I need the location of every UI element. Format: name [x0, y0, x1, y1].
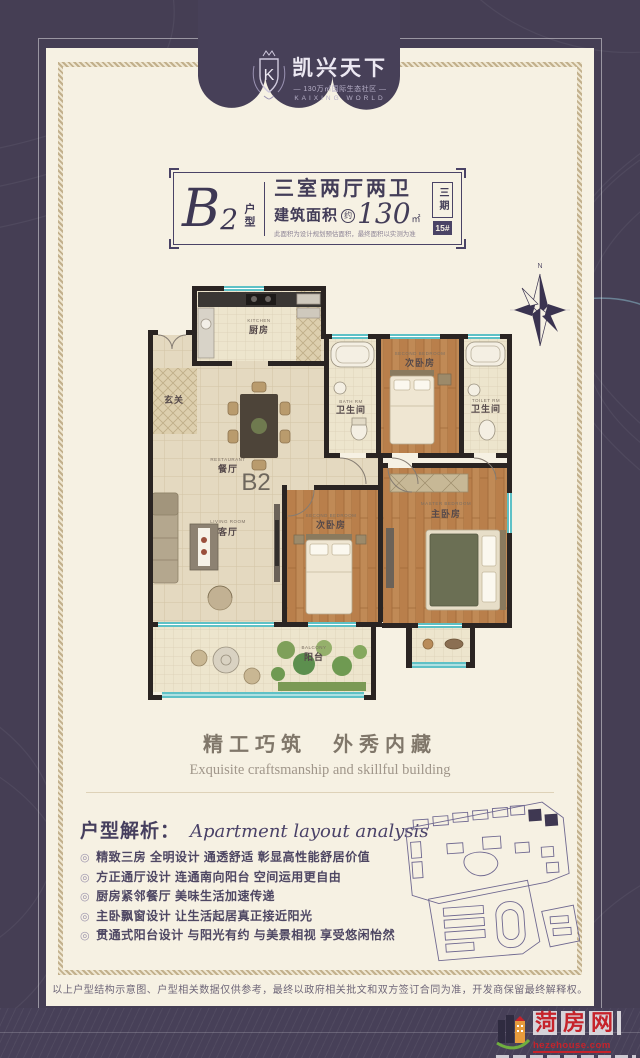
- bullet-icon: ◎: [80, 872, 90, 886]
- page: B 2 户型 三室两厅两卫 建筑面积 约 130 ㎡ 此面积为设计规划预估面积，…: [46, 48, 594, 1006]
- dining-label: 餐厅: [217, 463, 238, 474]
- master-label: 主卧房: [431, 508, 461, 519]
- area-label: 建筑面积: [274, 205, 338, 227]
- bath2-label: 卫生间: [471, 403, 501, 414]
- balcony-label: 阳台: [304, 651, 324, 662]
- brand-name: 凯兴天下: [288, 52, 392, 82]
- brand-monogram: K: [264, 67, 275, 84]
- analysis-title: 户型解析： Apartment layout analysis: [80, 816, 429, 843]
- analysis-title-en: Apartment layout analysis: [190, 821, 429, 842]
- building-number: 15#: [433, 221, 452, 235]
- disclaimer: 以上户型结构示意图、户型相关数据仅供参考，最终以政府相关批文和双方签订合同为准，…: [50, 981, 590, 996]
- hezehouse-logo: 菏房网 hezehouse.com 菏泽房产门户网站: [496, 1011, 636, 1057]
- analysis-bullet: ◎ 方正通厅设计 连通南向阳台 空间运用更自由: [80, 871, 400, 886]
- bullet-icon: ◎: [80, 891, 90, 905]
- bath1-label-en: BATH RM: [339, 399, 362, 404]
- analysis-bullet: ◎ 精致三房 全明设计 通透舒适 彰显高性能舒居价值: [80, 851, 400, 866]
- site-url: hezehouse.com: [533, 1040, 611, 1053]
- bedroom3-label: 次卧房: [316, 519, 346, 530]
- unit-letter: B: [182, 183, 220, 235]
- living-label: 客厅: [217, 526, 238, 537]
- bullet-text: 主卧飘窗设计 让生活起居真正接近阳光: [96, 910, 312, 924]
- phase-label: 三期: [432, 182, 453, 218]
- site-name: 菏房网: [533, 1011, 621, 1035]
- analysis-bullet: ◎ 厨房紧邻餐厅 美味生活加速传递: [80, 890, 400, 905]
- bullet-text: 方正通厅设计 连通南向阳台 空间运用更自由: [96, 871, 341, 885]
- analysis-bullets: ◎ 精致三房 全明设计 通透舒适 彰显高性能舒居价值 ◎ 方正通厅设计 连通南向…: [80, 851, 400, 949]
- foyer-label: 玄关: [164, 394, 184, 405]
- dining-label-en: RESTAURANT: [210, 457, 245, 462]
- unit-suffix: 户型: [241, 203, 257, 229]
- bath1-label: 卫生间: [336, 404, 366, 415]
- bedroom2-label-en: SECOND BEDROOM: [395, 351, 446, 356]
- bullet-icon: ◎: [80, 930, 90, 944]
- living-label-en: LIVING ROOM: [210, 519, 246, 524]
- kitchen-label-en: KITCHEN: [247, 318, 270, 323]
- plan-unit-label: B2: [241, 469, 270, 496]
- balcony-label-en: BALCONY: [301, 645, 326, 650]
- area-unit: ㎡: [412, 212, 421, 225]
- title-divider: [264, 182, 265, 236]
- compass: N: [508, 258, 572, 350]
- analysis-bullet: ◎ 主卧飘窗设计 让生活起居真正接近阳光: [80, 910, 400, 925]
- bath2-label-en: TOILET RM: [472, 398, 500, 403]
- slogan-en: Exquisite craftsmanship and skillful bui…: [46, 762, 594, 779]
- bedroom2-label: 次卧房: [405, 357, 435, 368]
- slogan: 精工巧筑 外秀内藏 Exquisite craftsmanship and sk…: [46, 728, 594, 779]
- poster-canvas: B 2 户型 三室两厅两卫 建筑面积 约 130 ㎡ 此面积为设计规划预估面积，…: [0, 0, 640, 1058]
- buildings-icon: [496, 1011, 530, 1051]
- phase-badge: 三期 15#: [432, 182, 453, 235]
- area-line: 建筑面积 约 130 ㎡: [274, 201, 428, 227]
- brand-badge: K 凯兴天下 — 130万㎡国际生态社区 — KAIXING WORLD: [198, 0, 400, 118]
- floor-plan: KITCHEN 厨房 玄关 RESTAURANT 餐厅 BATH RM 卫生间 …: [128, 278, 516, 712]
- bedroom3-label-en: SECOND BEDROOM: [306, 513, 357, 518]
- unit-code: B 2 户型: [182, 183, 257, 235]
- bullet-text: 精致三房 全明设计 通透舒适 彰显高性能舒居价值: [96, 851, 370, 865]
- slogan-zh: 精工巧筑 外秀内藏: [46, 728, 594, 757]
- unit-number: 2: [220, 205, 238, 235]
- bullet-text: 厨房紧邻餐厅 美味生活加速传递: [96, 890, 275, 904]
- analysis-bullet: ◎ 贯通式阳台设计 与阳光有约 与美景相视 享受悠闲怡然: [80, 929, 400, 944]
- kitchen-label: 厨房: [249, 324, 269, 335]
- compass-north-label: N: [537, 263, 542, 270]
- brand-name-en: KAIXING WORLD: [280, 95, 400, 102]
- bullet-text: 贯通式阳台设计 与阳光有约 与美景相视 享受悠闲怡然: [96, 929, 395, 943]
- bullet-icon: ◎: [80, 911, 90, 925]
- area-note: 此面积为设计规划预估面积，最终面积以实测为准: [274, 229, 416, 238]
- bullet-icon: ◎: [80, 852, 90, 866]
- area-approx-circle: 约: [341, 209, 355, 223]
- analysis-title-zh: 户型解析：: [80, 816, 180, 843]
- master-label-en: MASTER BEDROOM: [421, 501, 471, 506]
- title-box: B 2 户型 三室两厅两卫 建筑面积 约 130 ㎡ 此面积为设计规划预估面积，…: [173, 172, 462, 245]
- site-plan-map: [398, 793, 580, 985]
- brand-subtitle: — 130万㎡国际生态社区 —: [280, 84, 400, 94]
- area-value: 130: [357, 201, 410, 227]
- footer-bar: 菏房网 hezehouse.com 菏泽房产门户网站: [0, 1008, 640, 1058]
